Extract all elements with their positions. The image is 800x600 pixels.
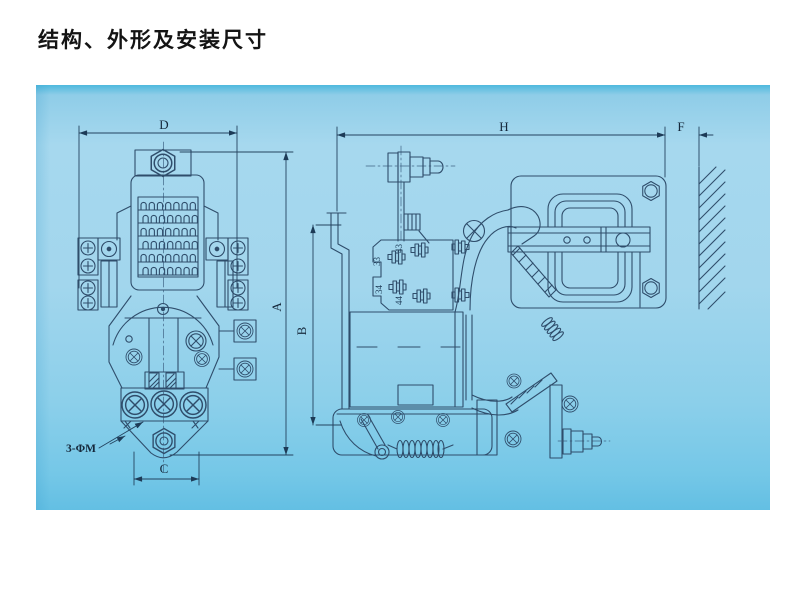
vent-panel (138, 197, 198, 277)
side-top-bolt (366, 146, 455, 243)
lower-right-assembly (472, 316, 610, 458)
dim-label-C: C (160, 461, 169, 476)
dim-label-B: B (294, 326, 309, 335)
coil-body (350, 312, 463, 407)
side-bracket (327, 213, 349, 409)
front-top-bolt (135, 150, 191, 177)
wall-hatching (699, 167, 725, 309)
front-terminals-lower (121, 372, 208, 458)
blueprint-panel: D A C 3-ΦM H F B 43 33 34 44 (36, 85, 770, 510)
busbar-loops (548, 194, 632, 302)
aux-contact-block (373, 240, 469, 310)
dim-label-H: H (499, 119, 508, 134)
terminal-label-34: 34 (374, 285, 384, 295)
page-title: 结构、外形及安装尺寸 (38, 24, 268, 54)
terminal-label-43: 43 (394, 244, 404, 254)
slide: 结构、外形及安装尺寸 (0, 0, 800, 600)
front-view (78, 142, 256, 472)
terminal-label-44: 44 (394, 296, 404, 306)
technical-drawing: D A C 3-ΦM H F B 43 33 34 44 (36, 85, 770, 510)
mounting-hole-callout (99, 422, 143, 448)
front-dimensions (79, 126, 293, 485)
dim-label-F: F (677, 119, 684, 134)
arc-chute-housing (117, 175, 218, 290)
side-view (327, 146, 725, 459)
mounting-hole-label: 3-ΦM (66, 443, 96, 455)
dim-label-D: D (159, 117, 168, 132)
terminal-label-33: 33 (372, 257, 382, 267)
armature (455, 207, 556, 400)
dim-label-A: A (269, 302, 284, 312)
